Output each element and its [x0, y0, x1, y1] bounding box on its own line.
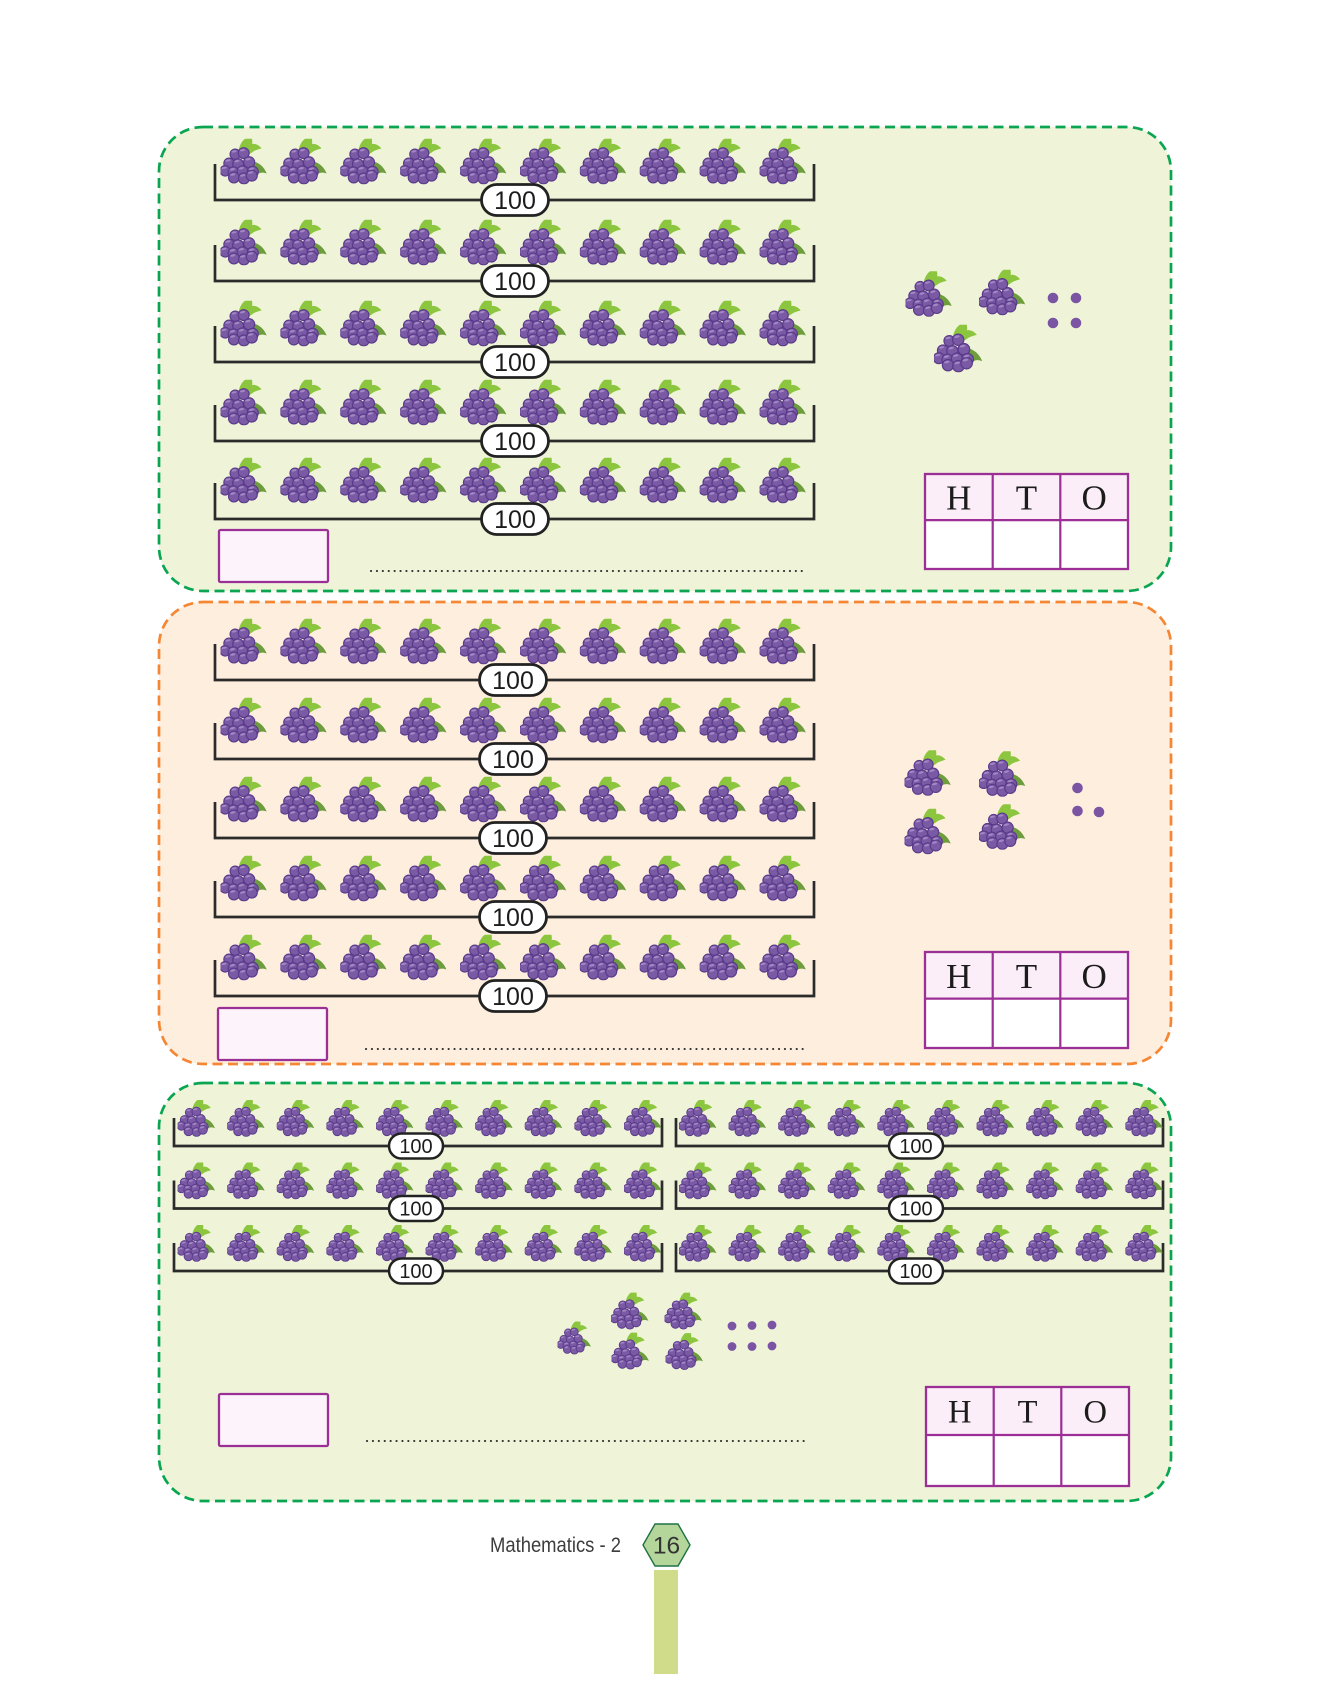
svg-text:H: H	[946, 479, 971, 518]
svg-text:O: O	[1082, 479, 1107, 518]
svg-text:H: H	[946, 957, 971, 996]
svg-text:O: O	[1082, 957, 1107, 996]
svg-text:T: T	[1016, 957, 1037, 996]
svg-text:T: T	[1016, 479, 1037, 518]
svg-text:O: O	[1083, 1395, 1106, 1431]
svg-text:T: T	[1018, 1395, 1038, 1431]
svg-text:16: 16	[653, 1533, 680, 1560]
svg-text:Mathematics - 2: Mathematics - 2	[490, 1534, 621, 1557]
svg-text:H: H	[948, 1395, 971, 1431]
